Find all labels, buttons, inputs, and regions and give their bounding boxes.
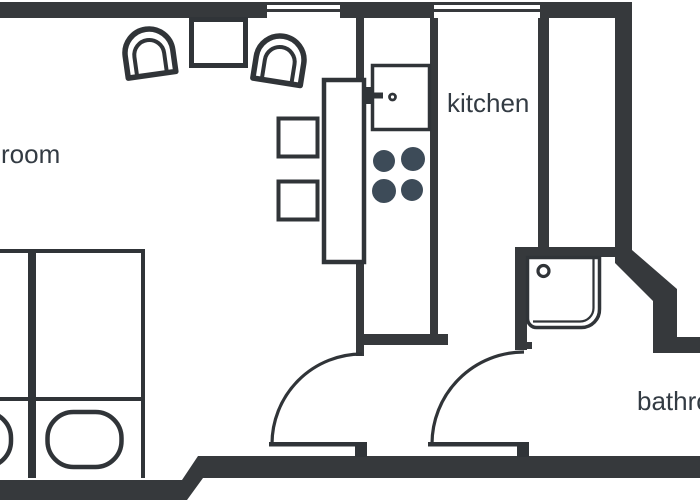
door-bathroom [428,352,529,457]
table-icon [192,20,246,66]
shower-icon [527,258,599,328]
window-mid-line [434,9,540,12]
kitchen-label: kitchen [447,90,529,116]
window-icon [267,2,340,18]
window-outer-line [267,2,340,5]
bathroom-label: bathroom [637,388,700,414]
stove-burner-icon [401,179,423,201]
wall-top-middle [340,2,434,18]
wall-top-left [0,2,267,18]
stove-icon [372,147,425,203]
door-jamb-stub [355,446,367,457]
stove-burner-icon [373,150,395,172]
door-leaf [269,442,367,447]
stool-icon [279,119,318,157]
door-swing-icon [432,352,524,444]
sink-icon [366,66,430,130]
window-outer-line [434,2,540,5]
faucet-spout [370,93,383,99]
bed-top-edge [0,249,145,253]
wall-kitchen-right [538,18,549,247]
door-swing-icon [272,354,362,444]
kitchen-fixtures [279,66,430,263]
wall-bathroom-diagonal [615,250,700,353]
dining-set [122,20,308,86]
stool-icon [279,182,318,220]
bed-divider [28,249,36,478]
wall-above-shower [515,247,618,257]
door-leaf [428,442,529,447]
window-icon [434,2,540,18]
wall-shower-left-door-jamb [515,247,527,350]
chair-icon [122,26,176,78]
bed-right-edge [141,249,145,478]
wall-kitchen-bottom-cap [356,334,448,345]
wall-right-exterior [615,18,632,250]
floor-plan-canvas: room kitchen bathroom [0,0,700,500]
pillow-icon [48,412,122,467]
window-mid-line [267,9,340,12]
stove-burner-icon [401,147,425,171]
wall-jamb-foot [515,342,532,349]
pillow-divider-line [0,397,28,401]
pillow-icon [0,412,11,467]
door-jamb-stub [517,446,529,457]
counter-icon [324,80,364,262]
wall-top-right [540,2,632,18]
floor-plan-drawing [0,0,700,500]
chair-icon [253,33,308,86]
beds [0,249,145,478]
pillow-divider-line [36,397,141,401]
stove-burner-icon [372,179,396,203]
room-label: room [1,141,60,167]
door-room [269,354,367,457]
